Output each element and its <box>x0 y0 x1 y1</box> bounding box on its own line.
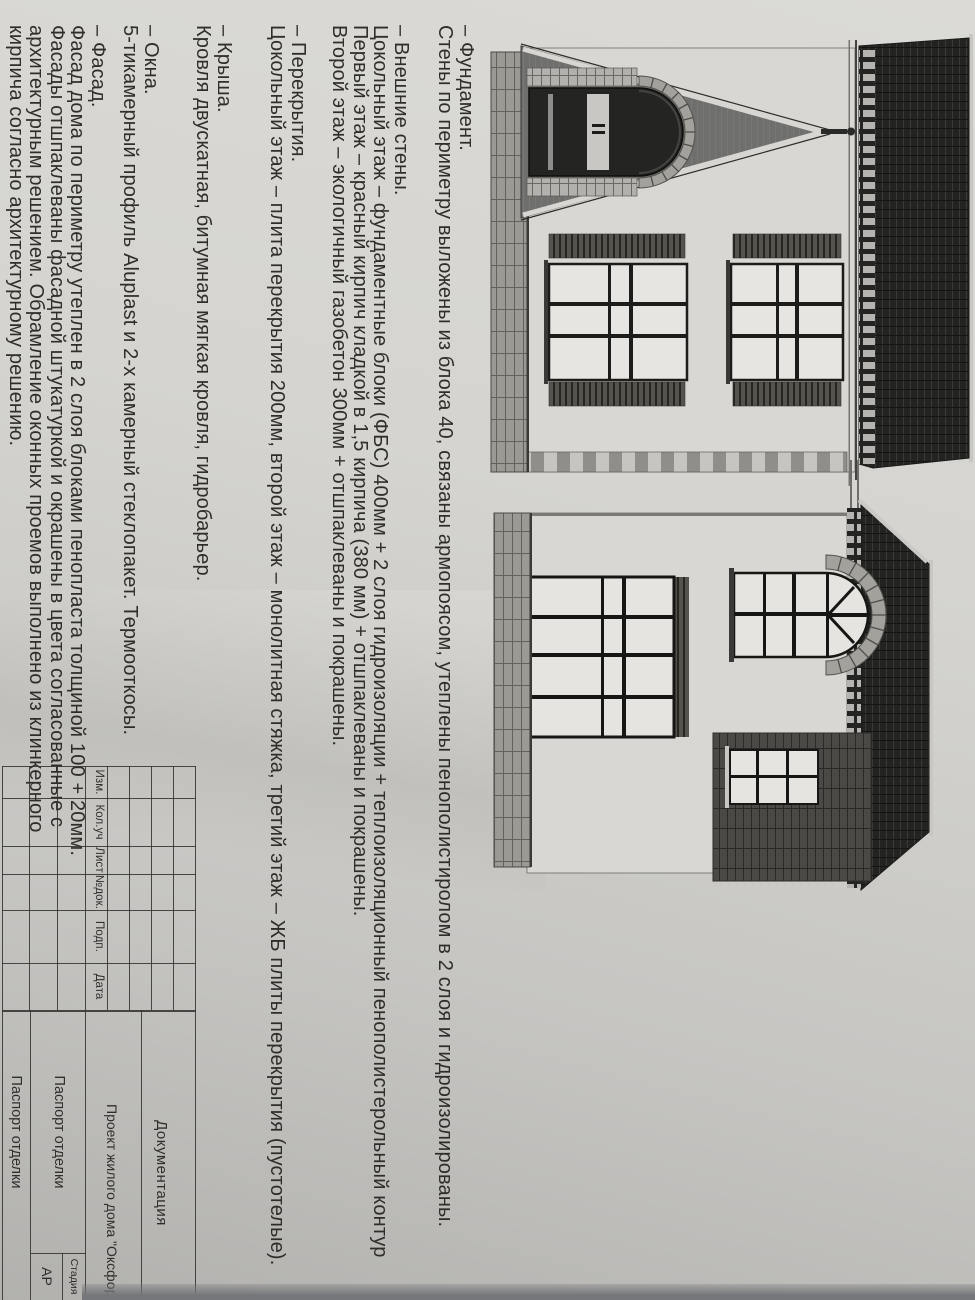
title-block-line <box>2 1010 196 1012</box>
spec-section-windows: – Окна. 5-тикамерный профиль Aluplast и … <box>120 25 161 735</box>
spec-heading: – Фундамент. <box>456 25 477 1227</box>
spec-section-foundation: – Фундамент. Стены по периметру выложены… <box>435 25 476 1227</box>
sheet-name-cell: Паспорт отделки <box>51 1018 67 1246</box>
title-block-line <box>151 766 152 1010</box>
sheet-landscape-content: – Фундамент. Стены по периметру выложены… <box>0 0 975 1300</box>
spec-line: кирпича согласно архитектурному решению. <box>6 25 27 856</box>
spec-heading: – Фасад. <box>88 25 109 856</box>
stage-value-cell: АР <box>39 1253 55 1300</box>
project-name-cell: Проект жилого дома "Оксфорд" в г.Ха <box>104 1104 120 1300</box>
spec-line: Фасады отшпаклеваны фасадной штукатуркой… <box>47 25 68 856</box>
title-block-line <box>129 766 130 1010</box>
spec-section-walls: – Внешние стены. Цокольный этаж – фундам… <box>329 25 411 1258</box>
spec-heading: – Окна. <box>141 25 162 735</box>
rev-col-list: Лист <box>86 846 111 874</box>
rev-col-ndok: №док. <box>86 874 111 910</box>
sheet-name-cell: Паспорт отделки <box>8 1018 24 1246</box>
spec-line: Фасад дома по периметру утеплен в 2 слоя… <box>67 25 88 856</box>
rev-col-izm: Изм. <box>86 766 111 798</box>
spec-line: Цокольный этаж – фундаментные блоки (ФБС… <box>370 25 391 1258</box>
rev-col-koluch: Кол.уч <box>86 798 111 846</box>
rev-col-podp: Подп. <box>86 910 111 963</box>
spec-line: Второй этаж – экологичный газобетон 300м… <box>329 25 350 1258</box>
title-block-line <box>30 1010 31 1300</box>
spec-line: 5-тикамерный профиль Aluplast и 2-х каме… <box>120 25 141 735</box>
spec-heading: – Перекрытия. <box>288 25 309 1265</box>
spec-heading: – Крыша. <box>214 25 235 581</box>
title-block-line <box>173 766 174 1010</box>
spec-line: Цокольный этаж – плита перекрытия 200мм,… <box>267 25 288 1265</box>
title-block: Изм. Кол.уч Лист №док. Подп. Дата Докуме… <box>0 766 196 1300</box>
photo-backdrop-strip <box>82 1284 975 1300</box>
stage-label-cell: Стадия <box>68 1253 80 1300</box>
spec-section-floors: – Перекрытия. Цокольный этаж – плита пер… <box>267 25 308 1265</box>
title-block-line <box>29 766 30 1010</box>
spec-section-roof: – Крыша. Кровля двускатная, битумная мяг… <box>193 25 234 581</box>
spec-line: Кровля двускатная, битумная мягкая кровл… <box>193 25 214 581</box>
spec-heading: – Внешние стены. <box>391 25 412 1258</box>
doc-type-cell: Документация <box>153 1050 170 1296</box>
title-block-line <box>141 1010 142 1300</box>
title-block-line <box>57 766 58 1010</box>
spec-line: Первый этаж – красный кирпич кладкой в 1… <box>350 25 371 1258</box>
photographed-drawing-sheet: – Фундамент. Стены по периметру выложены… <box>0 0 975 1300</box>
rev-col-data: Дата <box>86 963 111 1010</box>
title-block-line <box>62 1253 63 1300</box>
spec-section-facade: – Фасад. Фасад дома по периметру утеплен… <box>6 25 109 856</box>
spec-line: Стены по периметру выложены из блока 40,… <box>435 25 456 1227</box>
spec-line: архитектурным решением. Обрамление оконн… <box>26 25 47 856</box>
